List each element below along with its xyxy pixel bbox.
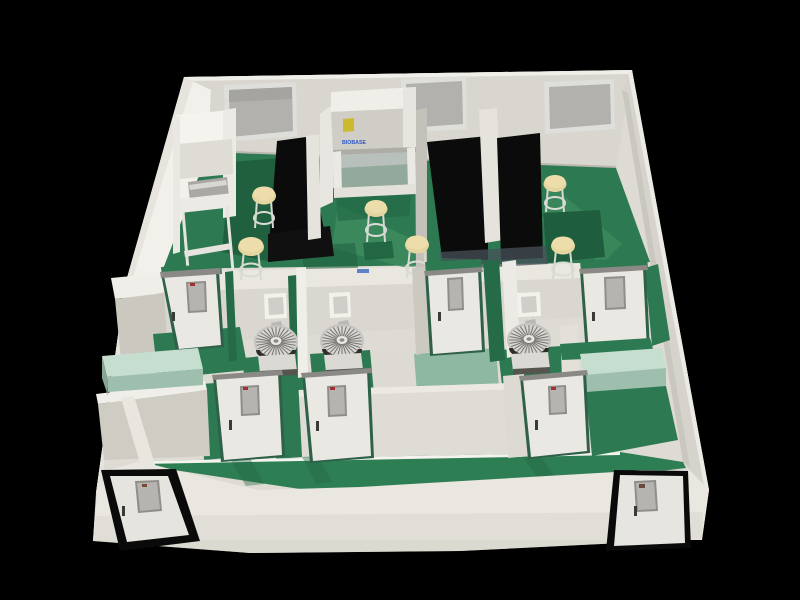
svg-text:BIOBASE: BIOBASE [342, 140, 366, 146]
